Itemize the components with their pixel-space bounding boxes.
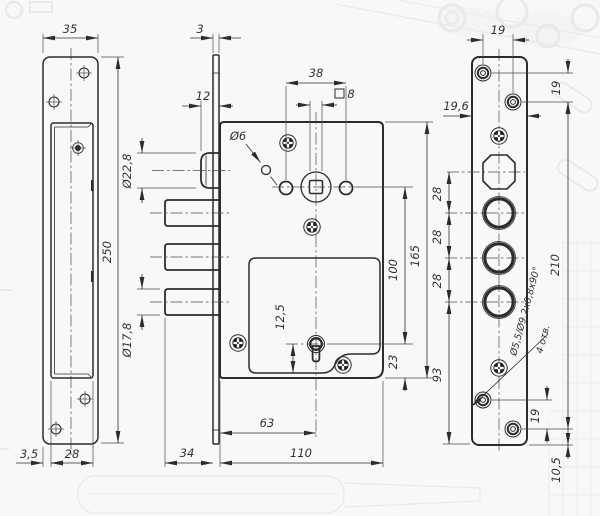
dim-label: 23 [386, 355, 400, 370]
dim-label: 28 [430, 187, 444, 202]
dim-3: 3 [190, 22, 241, 53]
dim-label: 38 [309, 66, 324, 80]
dim-label: 28 [430, 274, 444, 289]
centerlines [150, 112, 413, 440]
dim-label: 250 [100, 241, 114, 263]
dim-label: 3,5 [20, 447, 38, 461]
faceplate [213, 55, 219, 444]
dim-label: Ø17,8 [120, 323, 134, 359]
screw-hole [48, 421, 64, 437]
handle-screw-hole [340, 182, 353, 195]
countersink-note: Ø5,5/Ø9,2x0,8x90° 4 отв. [471, 266, 553, 407]
faceplate-outline [472, 57, 527, 445]
dim-deadbolt-dia: Ø17,8 [120, 274, 160, 358]
dim-35: 35 [43, 22, 98, 53]
drawing-page: 35 250 3,5 28 [0, 0, 600, 516]
dim-12: 12 [182, 89, 233, 151]
countersunk-hole [505, 94, 521, 110]
dim-19-right: 19 [549, 59, 568, 116]
dim-pin-hole: Ø6 [229, 129, 277, 185]
dim-34-110: 34 110 [165, 318, 383, 467]
slot-tab [91, 180, 94, 191]
dim-label: 210 [548, 254, 562, 276]
countersunk-hole [505, 421, 521, 437]
handle-screw-hole [280, 182, 293, 195]
dim-93: 93 [430, 302, 449, 444]
dim-label: Ø22,8 [120, 154, 134, 190]
screw [230, 335, 246, 351]
note-line-2: 4 отв. [535, 324, 553, 355]
lock-body-outline [220, 122, 383, 378]
screw-hole [77, 391, 93, 407]
screw [280, 135, 296, 151]
screw [335, 357, 351, 373]
strike-slot [51, 123, 94, 378]
dim-label: 19,6 [443, 99, 469, 113]
dim-63: 63 [220, 416, 316, 433]
rivet-dot [70, 140, 86, 156]
pin-hole [262, 166, 271, 175]
dim-label: 34 [180, 446, 195, 460]
square-symbol [335, 89, 344, 98]
dim-210: 210 [548, 102, 568, 445]
dim-label: 10,5 [549, 457, 563, 483]
dim-label: 12 [196, 89, 211, 103]
dim-19-bottom: 19 [528, 386, 547, 443]
dim-label: 19 [549, 81, 563, 96]
dim-label: 28 [430, 230, 444, 245]
dim-label: 93 [430, 368, 444, 383]
dim-label: 19 [491, 23, 506, 37]
dim-28-chain: 28 28 28 [430, 172, 449, 302]
countersunk-hole [475, 65, 491, 81]
dim-label: 100 [386, 259, 400, 281]
dim-label: 165 [408, 245, 422, 267]
dim-label: 110 [290, 446, 312, 460]
dim-100-165-23: 100 165 23 [385, 122, 433, 391]
slot-tab [91, 271, 94, 282]
screw-hole [46, 94, 62, 110]
dim-label: 28 [65, 447, 80, 461]
screw-hole [76, 65, 92, 81]
dim-label: 12,5 [273, 304, 287, 330]
dim-10_5: 10,5 [549, 415, 568, 483]
front-view-lock-body: 3 12 38 8 Ø6 [120, 22, 433, 467]
left-view-strike-plate: 35 250 3,5 28 [16, 22, 124, 467]
countersunk-hole [475, 392, 491, 408]
dim-label: 63 [260, 416, 275, 430]
dim-label: 19 [528, 409, 542, 424]
screw [304, 219, 320, 235]
lock-technical-drawing: 35 250 3,5 28 [0, 0, 600, 516]
dim-label: 8 [347, 87, 354, 101]
dim-250: 250 [100, 57, 124, 443]
cover-plate [249, 258, 380, 373]
dim-label: Ø6 [229, 129, 246, 143]
dim-label: 3 [196, 22, 203, 36]
right-view-faceplate: 19 19,6 19 210 28 28 28 93 [430, 23, 573, 483]
dim-12_5: 12,5 [273, 304, 293, 373]
dim-label: 35 [63, 22, 78, 36]
